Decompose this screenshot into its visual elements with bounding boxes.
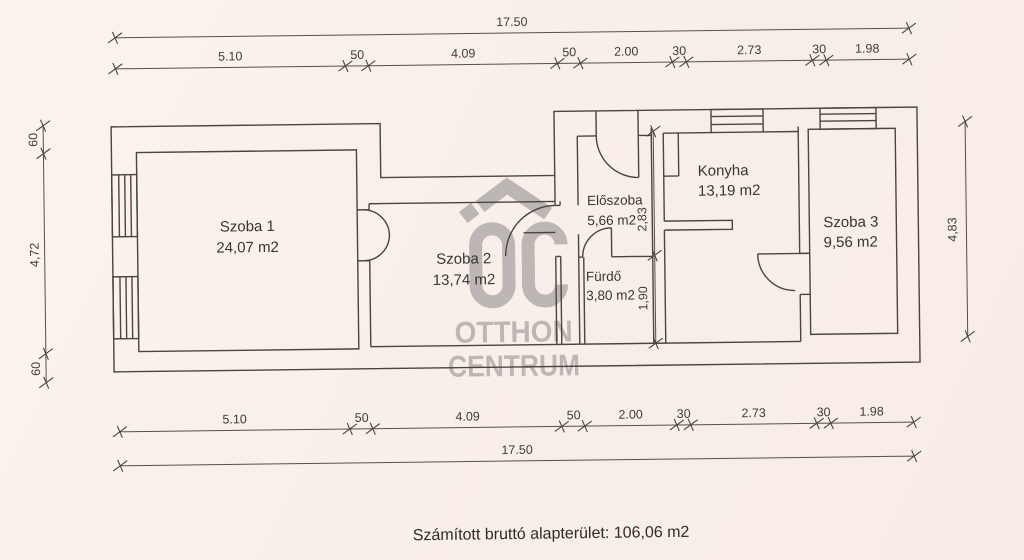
dim-bottom-8: 1.98 xyxy=(859,404,884,418)
room-label-furdo: Fürdő xyxy=(586,269,621,284)
dim-bottom-0: 5.10 xyxy=(222,412,247,426)
dim-top-4: 2.00 xyxy=(614,44,639,58)
window-icon xyxy=(113,277,139,339)
window-icon xyxy=(112,175,138,237)
dim-interior-upper: 2,83 xyxy=(635,207,649,232)
door-konyha-szoba3 xyxy=(758,253,810,291)
dim-top-1: 50 xyxy=(350,48,364,62)
dim-bottom-4: 2.00 xyxy=(618,407,643,421)
room-label-szoba3: Szoba 3 xyxy=(823,214,878,232)
right-dimline xyxy=(965,121,968,336)
konyha-chimney-niche xyxy=(663,133,679,176)
room-label-konyha: Konyha xyxy=(698,162,750,180)
dim-top-2: 4.09 xyxy=(451,46,476,60)
room-area-szoba1: 24,07 m2 xyxy=(216,239,279,257)
left-dimline xyxy=(43,126,46,383)
room-area-konyha: 13,19 m2 xyxy=(698,182,761,200)
top-total-dimline xyxy=(115,28,909,38)
bottom-inner-wall xyxy=(371,341,801,346)
room-area-furdo: 3,80 m2 xyxy=(586,287,635,303)
door-eloszoba-furdo xyxy=(582,228,611,257)
room-label-szoba1: Szoba 1 xyxy=(220,218,275,236)
dim-bottom-7: 30 xyxy=(817,405,831,419)
logo-roof-icon xyxy=(480,186,548,215)
dim-bottom-6: 2.73 xyxy=(741,406,766,420)
room-area-szoba2: 13,74 m2 xyxy=(433,271,496,289)
dim-interior-lower: 1,90 xyxy=(636,286,650,311)
room-area-szoba3: 9,56 m2 xyxy=(823,234,877,252)
dim-bottom-3: 50 xyxy=(567,408,581,422)
dim-bottom-5: 30 xyxy=(677,407,691,421)
konyha-counter-wall xyxy=(664,220,732,230)
dim-top-total: 17.50 xyxy=(496,15,527,29)
dim-top-5: 30 xyxy=(672,44,686,58)
floorplan-photo: OTTHON CENTRUM xyxy=(0,0,1024,560)
dimension-labels: 17.50 5.10 50 4.09 50 2.00 30 2.73 30 1.… xyxy=(25,10,962,463)
bottom-total-dimline xyxy=(120,456,914,466)
szoba3-room-outline xyxy=(808,128,897,334)
dim-top-8: 1.98 xyxy=(855,41,880,55)
eloszoba-furdo-walls xyxy=(577,128,654,344)
dim-bottom-2: 4.09 xyxy=(455,409,480,423)
entrance-jambs xyxy=(596,110,638,136)
dim-left-middle: 4,72 xyxy=(28,243,42,268)
room-label-eloszoba: Előszoba xyxy=(587,192,643,208)
dim-right: 4,83 xyxy=(945,217,959,242)
dim-bottom-1: 50 xyxy=(355,411,369,425)
dim-top-0: 5.10 xyxy=(218,49,243,63)
logo-roof-left-icon xyxy=(463,208,475,217)
dim-top-7: 30 xyxy=(812,42,826,56)
room-label-szoba2: Szoba 2 xyxy=(436,250,491,268)
dim-left-top: 60 xyxy=(26,133,40,147)
entrance-door xyxy=(596,135,639,178)
window-icon xyxy=(820,108,876,130)
dim-top-3: 50 xyxy=(562,45,576,59)
window-icon xyxy=(711,109,763,133)
dim-left-bottom: 60 xyxy=(29,362,43,376)
dim-bottom-total: 17.50 xyxy=(501,443,532,457)
room-area-eloszoba: 5,66 m2 xyxy=(587,212,636,228)
gross-area-text: Számított bruttó alapterület: 106,06 m2 xyxy=(413,524,690,544)
floorplan-drawing: OTTHON CENTRUM xyxy=(0,0,1024,560)
double-door-szoba1-szoba2 xyxy=(363,209,390,260)
dim-top-6: 2.73 xyxy=(737,43,762,57)
